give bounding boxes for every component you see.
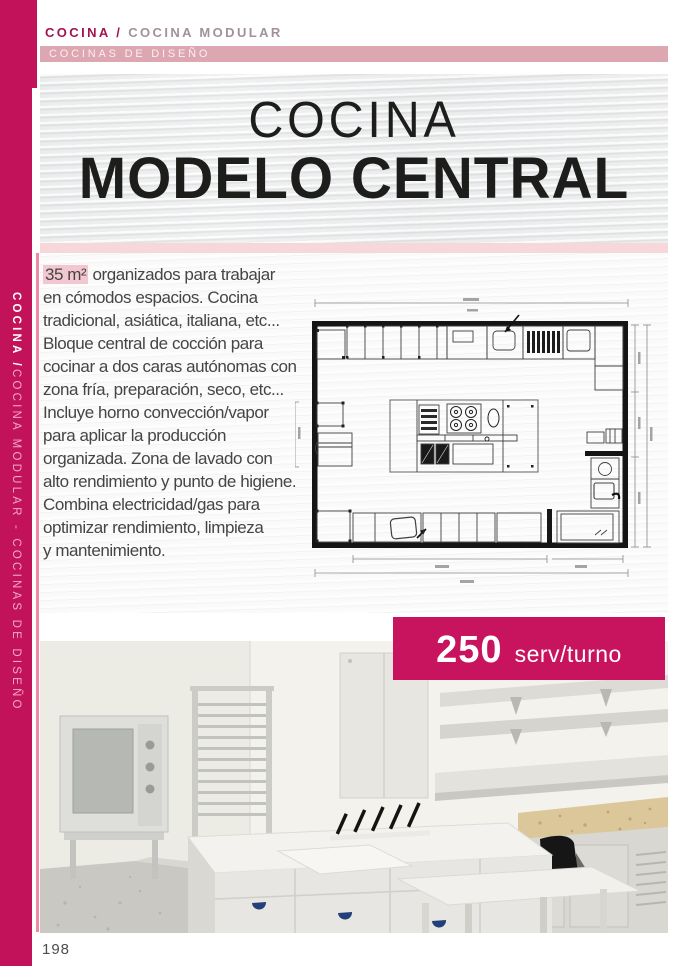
breadcrumb-section: COCINA / [45, 25, 122, 40]
paragraph-line: Incluye horno convección/vapor [43, 401, 313, 424]
paragraph-line: cocinar a dos caras autónomas con [43, 355, 313, 378]
area-highlight: 35 m² [43, 265, 88, 284]
paragraph-line: alto rendimiento y punto de higiene. [43, 470, 313, 493]
sidebar-vertical-label-rest: COCINA MODULAR - COCINAS DE DISEÑO [10, 369, 22, 712]
middle-section: 35 m² organizados para trabajar en cómod… [40, 253, 668, 613]
paragraph-line: Combina electricidad/gas para [43, 493, 313, 516]
servings-unit: serv/turno [515, 641, 622, 668]
page-number: 198 [42, 941, 70, 958]
page-content: COCINA / COCINA MODULAR COCINAS DE DISEÑ… [40, 0, 668, 980]
category-bar: COCINAS DE DISEÑO [40, 46, 668, 62]
kitchen-floor-plan-drawing [295, 297, 665, 597]
description-paragraph: 35 m² organizados para trabajar en cómod… [43, 263, 313, 562]
sidebar-vertical-label-bold: COCINA / [10, 292, 22, 369]
paragraph-line: para aplicar la producción [43, 424, 313, 447]
paragraph-line: en cómodos espacios. Cocina [43, 286, 313, 309]
paragraph-line: zona fría, preparación, seco, etc... [43, 378, 313, 401]
breadcrumb: COCINA / COCINA MODULAR [45, 25, 283, 40]
breadcrumb-subsection: COCINA MODULAR [122, 25, 282, 40]
servings-value: 250 [436, 627, 502, 673]
paragraph-line: tradicional, asiática, italiana, etc... [43, 309, 313, 332]
kitchen-3d-render [40, 641, 668, 933]
paragraph-line-rest: organizados para trabajar [88, 265, 275, 284]
servings-badge: 250 serv/turno [393, 617, 665, 680]
title-banner: COCINA MODELO CENTRAL [40, 74, 668, 243]
content-left-pink-rule [36, 253, 39, 932]
paragraph-line: organizada. Zona de lavado con [43, 447, 313, 470]
floor-plan-figure [295, 297, 665, 597]
paragraph-line: Bloque central de cocción para [43, 332, 313, 355]
kitchen-photo [40, 641, 668, 933]
banner-underline-strip [40, 243, 668, 253]
paragraph-line: 35 m² organizados para trabajar [43, 263, 313, 286]
sidebar-vertical-label: COCINA / COCINA MODULAR - COCINAS DE DIS… [0, 292, 32, 712]
page-title-line2: MODELO CENTRAL [46, 148, 661, 210]
paragraph-line: optimizar rendimiento, limpieza [43, 516, 313, 539]
page-title-line1: COCINA [56, 92, 653, 148]
paragraph-line: y mantenimiento. [43, 539, 313, 562]
paragraph-lines: en cómodos espacios. Cocinatradicional, … [43, 286, 313, 562]
